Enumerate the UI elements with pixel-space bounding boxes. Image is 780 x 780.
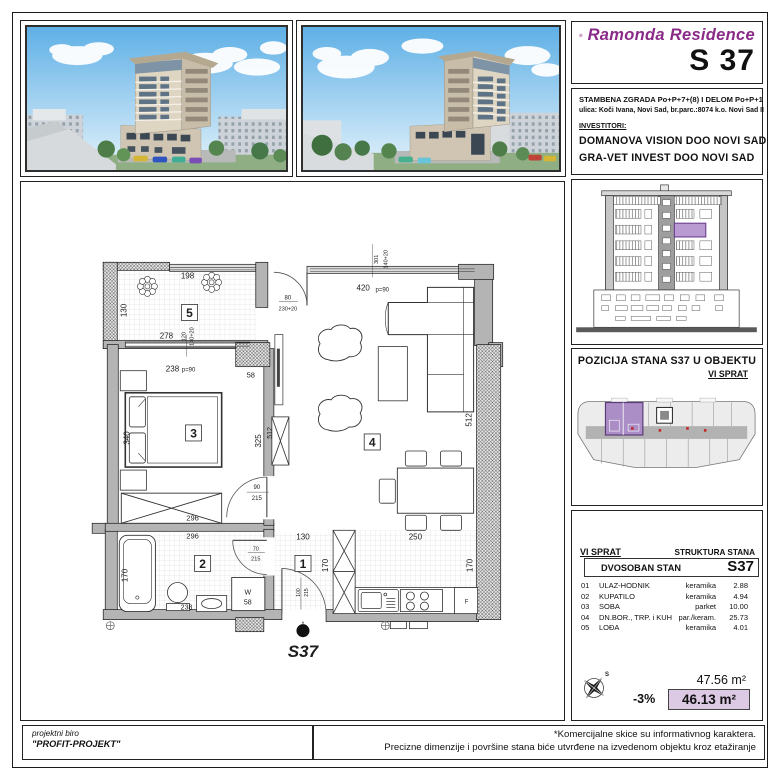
balconies bbox=[611, 398, 715, 402]
entrance-label: S37 bbox=[288, 642, 320, 661]
render-photo-1 bbox=[20, 20, 293, 177]
row-num: 03 bbox=[581, 602, 589, 611]
row-name: SOBA bbox=[599, 602, 620, 611]
ground-line bbox=[576, 327, 757, 332]
stove bbox=[400, 590, 442, 612]
dim: 130 bbox=[296, 532, 310, 541]
row-area: 25.73 bbox=[718, 613, 748, 622]
row-area: 10.00 bbox=[718, 602, 748, 611]
dim: 238 bbox=[181, 605, 193, 612]
row-num: 02 bbox=[581, 592, 589, 601]
row-finish: keramika bbox=[686, 581, 716, 590]
row-name: LOĐA bbox=[599, 623, 619, 632]
floorplan-panel: 5 3 4 2 1 301 140+20 420 p=90 198 130 27… bbox=[20, 181, 565, 721]
compass-north-label: S bbox=[605, 672, 609, 678]
dim: 278 bbox=[160, 332, 174, 341]
tower bbox=[438, 51, 515, 132]
dim: 301 bbox=[374, 255, 380, 264]
structure-table-panel: VI SPRAT STRUKTURA STANA DVOSOBAN STAN S… bbox=[571, 510, 763, 721]
dim: 250 bbox=[409, 532, 423, 541]
building-render-sw bbox=[27, 27, 286, 170]
disclaimer-line-2: Precizne dimenzije i površine stana biće… bbox=[322, 742, 756, 755]
elevator-core bbox=[657, 407, 673, 423]
investors-label: INVESTITORI: bbox=[579, 121, 755, 130]
row-name: ULAZ-HODNIK bbox=[599, 581, 650, 590]
bed bbox=[120, 371, 221, 490]
render-photo-1-frame bbox=[25, 25, 288, 172]
apartment-unit: S37 bbox=[727, 558, 754, 575]
kitchen-sink bbox=[358, 590, 398, 612]
dim: 80 bbox=[285, 295, 292, 301]
dim: 70 bbox=[253, 546, 259, 552]
table-row: 04DN.BOR., TRP. i KUHpar./keram.25.73 bbox=[572, 613, 762, 624]
dim: 140+20 bbox=[383, 250, 389, 269]
dim: p=90 bbox=[182, 368, 196, 374]
building-type: STAMBENA ZGRADA Po+P+7+(8) I DELOM Po+P+… bbox=[579, 95, 755, 104]
background-building-right bbox=[504, 113, 559, 159]
dim: 170 bbox=[321, 558, 330, 572]
title-box: Ramonda Residence S 37 bbox=[571, 21, 763, 84]
dim: 130 bbox=[119, 303, 128, 317]
room-label-bedroom: 3 bbox=[190, 426, 197, 440]
elevation-base bbox=[594, 290, 739, 327]
compass-icon: S bbox=[578, 668, 612, 704]
dim: p=90 bbox=[375, 287, 389, 293]
dim: 58 bbox=[247, 371, 255, 380]
brand-name: Ramonda Residence bbox=[588, 26, 755, 45]
floorplan-sheet: Ramonda Residence S 37 STAMBENA ZGRADA P… bbox=[0, 0, 780, 780]
disclaimer-line-1: *Komercijalne skice su informativnog kar… bbox=[322, 729, 756, 742]
dim: 325 bbox=[254, 434, 263, 448]
investor-1: DOMANOVA VISION DOO NOVI SAD bbox=[579, 135, 755, 147]
unit-number: S 37 bbox=[579, 46, 755, 76]
dim: 238 bbox=[166, 365, 180, 374]
row-name: KUPATILO bbox=[599, 592, 635, 601]
row-num: 05 bbox=[581, 623, 589, 632]
entrance-marker: S37 bbox=[288, 622, 320, 661]
dim: 90 bbox=[253, 485, 260, 491]
apartment-type: DVOSOBAN STAN bbox=[601, 563, 681, 573]
row-finish: par./keram. bbox=[678, 613, 716, 622]
dim: 230+20 bbox=[279, 306, 298, 312]
row-num: 04 bbox=[581, 613, 589, 622]
position-title: POZICIJA STANA S37 U OBJEKTU bbox=[572, 355, 762, 367]
footer-disclaimer-box: *Komercijalne skice su informativnog kar… bbox=[313, 725, 765, 760]
table-row: 01ULAZ-HODNIKkeramika2.88 bbox=[572, 581, 762, 592]
apartment-floorplan: 5 3 4 2 1 301 140+20 420 p=90 198 130 27… bbox=[59, 184, 561, 716]
sink bbox=[197, 596, 227, 612]
living-closet bbox=[272, 417, 289, 465]
dim: 340 bbox=[122, 431, 131, 445]
dim: 58 bbox=[244, 600, 252, 607]
highlighted-apartment bbox=[605, 403, 642, 435]
investor-2: GRA-VET INVEST DOO NOVI SAD bbox=[579, 152, 755, 164]
table-row: 03SOBAparket10.00 bbox=[572, 602, 762, 613]
kitchen-counter bbox=[355, 588, 477, 614]
tower bbox=[128, 52, 218, 134]
dim: 296 bbox=[186, 513, 199, 522]
dim: F bbox=[465, 600, 469, 606]
room-label-loggia: 5 bbox=[186, 306, 193, 320]
hall-cabinet bbox=[333, 530, 355, 613]
dim: 140+20 bbox=[190, 327, 196, 346]
render-photo-2-frame bbox=[301, 25, 561, 172]
tv-unit bbox=[275, 335, 283, 405]
dim: 170 bbox=[120, 568, 129, 582]
apartment-type-box: DVOSOBAN STAN S37 bbox=[584, 558, 759, 577]
row-num: 01 bbox=[581, 581, 589, 590]
dim: W bbox=[244, 590, 251, 597]
nightstand bbox=[120, 371, 146, 391]
table-header: STRUKTURA STANA bbox=[674, 548, 755, 557]
row-finish: keramika bbox=[686, 592, 716, 601]
table-floor-label: VI SPRAT bbox=[580, 547, 621, 557]
wardrobe bbox=[121, 493, 221, 523]
dim: 120 bbox=[182, 332, 188, 341]
render-photo-2 bbox=[296, 20, 566, 177]
nightstand bbox=[120, 470, 146, 490]
dim: 170 bbox=[466, 558, 475, 572]
dining-table bbox=[379, 451, 473, 530]
dim: 512 bbox=[267, 427, 274, 439]
building-info-box: STAMBENA ZGRADA Po+P+7+(8) I DELOM Po+P+… bbox=[571, 88, 763, 175]
flower-icon bbox=[579, 27, 583, 44]
floor-position-plan bbox=[572, 379, 761, 491]
dim: 198 bbox=[181, 271, 195, 280]
designer-label: projektni biro bbox=[32, 729, 303, 738]
row-area: 4.01 bbox=[718, 623, 748, 632]
room-label-living: 4 bbox=[369, 435, 376, 449]
dim: 296 bbox=[186, 531, 199, 540]
room-label-bath: 2 bbox=[199, 557, 206, 571]
row-name: DN.BOR., TRP. i KUH bbox=[599, 613, 672, 622]
dim: 420 bbox=[357, 283, 371, 292]
coffee-table bbox=[378, 347, 407, 401]
position-floor: VI SPRAT bbox=[572, 369, 762, 379]
gross-area: 47.56 m² bbox=[697, 673, 746, 687]
row-area: 4.94 bbox=[718, 592, 748, 601]
dim: 215 bbox=[251, 556, 260, 562]
building-address: ulica: Koči Ivana, Novi Sad, br.parc.:80… bbox=[579, 107, 755, 114]
table-row: 02KUPATILOkeramika4.94 bbox=[572, 592, 762, 603]
dim: 215 bbox=[304, 588, 310, 597]
row-area: 2.88 bbox=[718, 581, 748, 590]
dim: 512 bbox=[465, 413, 474, 427]
room-label-hall: 1 bbox=[300, 557, 307, 571]
room-list: 01ULAZ-HODNIKkeramika2.88 02KUPATILOkera… bbox=[572, 581, 762, 634]
dim: 215 bbox=[252, 496, 263, 502]
building-elevation bbox=[572, 180, 761, 343]
building-render-se bbox=[303, 27, 559, 170]
highlighted-unit bbox=[674, 223, 705, 237]
floor-plants bbox=[318, 325, 362, 431]
position-panel: POZICIJA STANA S37 U OBJEKTU VI SPRAT bbox=[571, 348, 763, 506]
designer-name: "PROFIT-PROJEKT" bbox=[32, 739, 303, 749]
reduction-pct: -3% bbox=[633, 692, 655, 706]
table-row: 05LOĐAkeramika4.01 bbox=[572, 623, 762, 634]
net-area-box: 46.13 m² bbox=[668, 689, 750, 710]
elevation-panel bbox=[571, 179, 763, 345]
row-finish: parket bbox=[695, 602, 716, 611]
footer-designer-box: projektni biro "PROFIT-PROJEKT" bbox=[22, 725, 313, 760]
row-finish: keramika bbox=[686, 623, 716, 632]
